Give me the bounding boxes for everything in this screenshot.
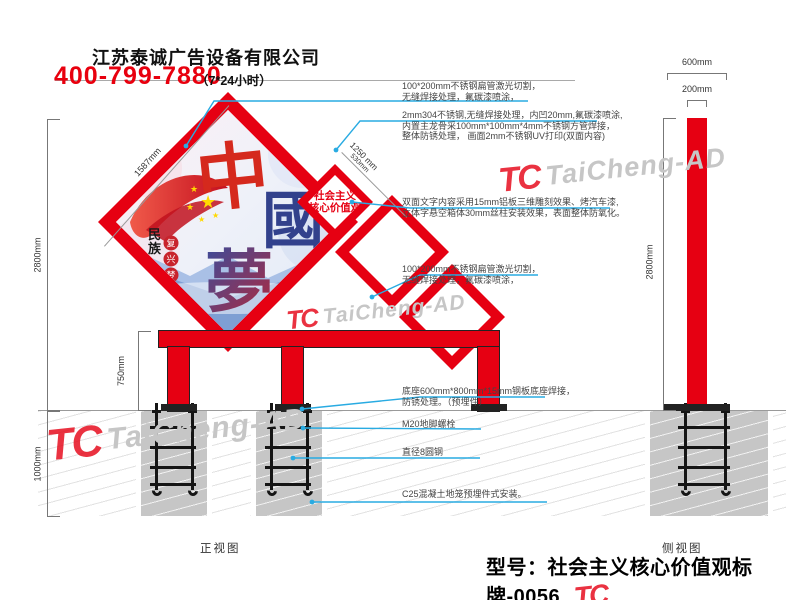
dim-leg-height: [138, 331, 139, 411]
dim-front-total-label: 2800mm: [33, 237, 43, 272]
dim-side-total: [663, 118, 664, 411]
annotation-line: 整体防锈处理， 画面2mm不锈钢UV打印(双面内容): [402, 131, 623, 142]
drawing-canvas: 江苏泰诚广告设备有限公司 400-799-7880 （7*24小时） TC Ta…: [0, 0, 800, 600]
base-plate: [161, 404, 197, 411]
small-sign-line2: 核心价值观: [309, 202, 362, 215]
leader-dot: [334, 148, 339, 153]
annotation-line: 100*200mm不锈钢扁管激光切割，: [402, 81, 541, 92]
main-sign-face: ★ ★ ★ ★ ★ 中 國 夢 民 族 复 兴 梦: [116, 110, 340, 334]
annotation-anchor-bolt: M20地脚螺栓: [402, 419, 456, 430]
leader-dot: [370, 295, 375, 300]
base-plate: [275, 404, 311, 411]
annotation-line: 内置主龙骨采100mm*100mm*4mm不锈钢方管焊接，: [402, 121, 623, 132]
dim-side-pole: [687, 100, 707, 101]
small-sign-line1: 社会主义: [314, 190, 356, 203]
front-view-label: 正视图: [200, 540, 241, 556]
cage-rung: [265, 446, 311, 449]
dim-underground: [47, 411, 48, 517]
annotation-line: 100*200mm不锈钢扁管激光切割，: [402, 264, 541, 275]
nation-char: 民: [148, 227, 161, 242]
annotation-line: 双面文字内容采用15mm铝板三维雕刻效果、烤汽车漆,: [402, 197, 625, 208]
annotation-frame-tube: 100*200mm不锈钢扁管激光切割， 无缝焊接处理，氟碳漆喷涂，: [402, 81, 541, 102]
annotation-line: C25混凝土地笼预埋件式安装。: [402, 489, 527, 500]
cage-rung: [678, 426, 730, 429]
annotation-line: 2mm304不锈钢,无缝焊接处理，内凹20mm,氟碳漆喷涂,: [402, 110, 623, 121]
dim-underground-label: 1000mm: [33, 446, 43, 481]
tc-logo-icon: TC: [497, 158, 542, 201]
dim-side-base-label: 600mm: [667, 57, 727, 67]
seal-char: 兴: [166, 255, 175, 265]
annotation-line: M20地脚螺栓: [402, 419, 456, 430]
dim-side-total-label: 2800mm: [645, 244, 655, 279]
leg-left: [167, 346, 190, 412]
annotation-line: 底座600mm*800mm*15mm钢板底座焊接，: [402, 386, 575, 397]
star-icon: ★: [186, 202, 194, 212]
seal-char: 复: [166, 238, 175, 249]
annotation-frame-tube-2: 100*200mm不锈钢扁管激光切割， 无缝焊接处理，氟碳漆喷涂，: [402, 264, 541, 285]
annotation-lettering: 双面文字内容采用15mm铝板三维雕刻效果、烤汽车漆, 立体字悬空箱体30mm丝柱…: [402, 197, 625, 218]
annotation-line: 立体字悬空箱体30mm丝柱安装效果，表面整体防氧化。: [402, 208, 625, 219]
cage-rung: [150, 426, 196, 429]
annotation-line: 无缝焊接处理，氟碳漆喷涂，: [402, 92, 541, 103]
annotation-concrete: C25混凝土地笼预埋件式安装。: [402, 489, 527, 500]
cage-rung: [265, 426, 311, 429]
annotation-line: 防锈处理。（预埋件）: [402, 397, 575, 408]
service-hours: （7*24小时）: [196, 70, 272, 89]
china-dream-artwork: ★ ★ ★ ★ ★ 中 國 夢 民 族 复 兴 梦: [116, 110, 340, 334]
model-number: 型号：社会主义核心价值观标牌-0056: [486, 551, 800, 600]
side-view-pole: [687, 118, 707, 411]
cage-rung: [150, 446, 196, 449]
calligraphy-zhong: 中: [193, 134, 273, 221]
dim-side-pole-label: 200mm: [662, 84, 732, 94]
leg-middle: [281, 346, 304, 412]
dim-leg-height-label: 750mm: [116, 356, 126, 386]
cage-rung: [150, 466, 196, 469]
dim-side-base: [667, 73, 727, 74]
nation-char: 族: [148, 241, 162, 256]
cage-rung: [678, 466, 730, 469]
dim-small-panel-edge-label: 1250 mm 530mm: [343, 140, 380, 177]
cage-rung: [678, 446, 730, 449]
dim-front-total: [47, 119, 48, 411]
cage-rung: [265, 466, 311, 469]
annotation-box: 2mm304不锈钢,无缝焊接处理，内凹20mm,氟碳漆喷涂, 内置主龙骨采100…: [402, 110, 623, 142]
crossbar: [158, 330, 500, 348]
annotation-line: 无缝焊接处理，氟碳漆喷涂，: [402, 275, 541, 286]
annotation-line: 直径8圆钢: [402, 447, 443, 458]
annotation-base-plate: 底座600mm*800mm*15mm钢板底座焊接， 防锈处理。（预埋件）: [402, 386, 575, 407]
annotation-rebar: 直径8圆钢: [402, 447, 443, 458]
